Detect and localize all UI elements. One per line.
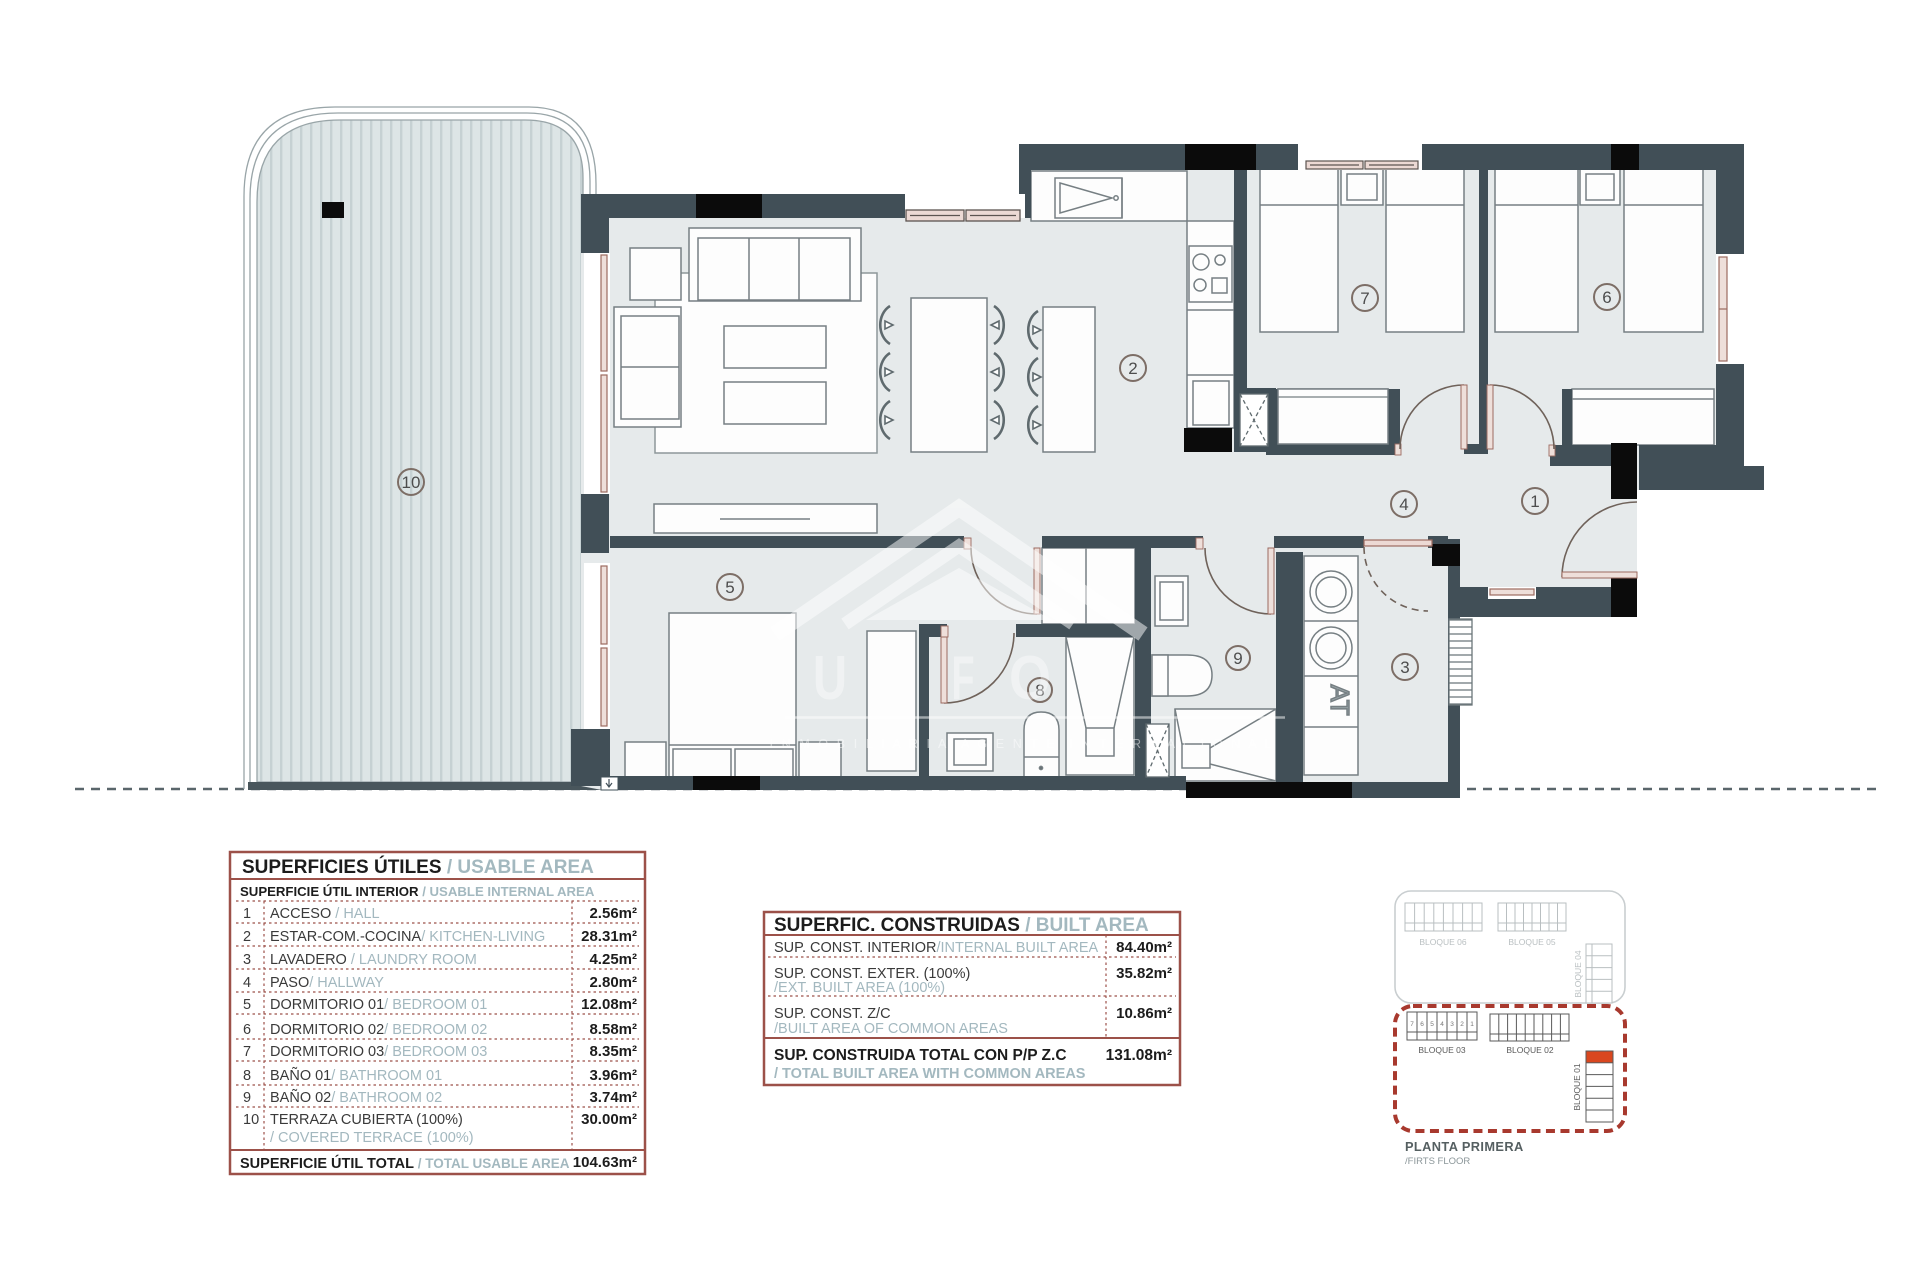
svg-text:1: 1	[243, 906, 251, 922]
svg-text:BAÑO 02/ BATHROOM 02: BAÑO 02/ BATHROOM 02	[270, 1089, 442, 1106]
svg-text:BLOQUE 05: BLOQUE 05	[1508, 937, 1556, 947]
svg-text:28.31m²: 28.31m²	[581, 928, 637, 945]
svg-text:BAÑO 01/ BATHROOM 01: BAÑO 01/ BATHROOM 01	[270, 1067, 442, 1084]
svg-text:/ COVERED TERRACE (100%): / COVERED TERRACE (100%)	[270, 1130, 474, 1146]
svg-text:2: 2	[243, 929, 251, 945]
svg-text:7: 7	[1360, 289, 1369, 308]
svg-text:8: 8	[243, 1068, 251, 1084]
svg-text:AT: AT	[1325, 684, 1355, 715]
svg-text:30.00m²: 30.00m²	[581, 1111, 637, 1128]
svg-text:BLOQUE 03: BLOQUE 03	[1418, 1045, 1466, 1055]
svg-text:SUPERFIC. CONSTRUIDAS / BUILT: SUPERFIC. CONSTRUIDAS / BUILT AREA	[774, 915, 1149, 936]
svg-text:12.08m²: 12.08m²	[581, 996, 637, 1013]
svg-text:1: 1	[1530, 492, 1539, 511]
svg-text:3: 3	[1450, 1021, 1454, 1028]
svg-text:131.08m²: 131.08m²	[1106, 1047, 1172, 1064]
svg-text:6: 6	[1602, 288, 1611, 307]
svg-text:3: 3	[1400, 658, 1409, 677]
svg-text:4: 4	[1440, 1021, 1444, 1028]
svg-text:BLOQUE 04: BLOQUE 04	[1573, 950, 1583, 998]
svg-text:10.86m²: 10.86m²	[1116, 1005, 1172, 1022]
svg-text:1: 1	[1470, 1021, 1474, 1028]
svg-text:5: 5	[1430, 1021, 1434, 1028]
svg-text:10: 10	[402, 473, 421, 492]
svg-text:4.25m²: 4.25m²	[589, 951, 637, 968]
svg-text:BLOQUE 02: BLOQUE 02	[1506, 1045, 1554, 1055]
svg-text:7: 7	[243, 1044, 251, 1060]
svg-text:SUP. CONSTRUIDA TOTAL CON P/P: SUP. CONSTRUIDA TOTAL CON P/P Z.C	[774, 1047, 1067, 1064]
svg-text:6: 6	[1420, 1021, 1424, 1028]
svg-text:SUPERFICIE ÚTIL INTERIOR / USA: SUPERFICIE ÚTIL INTERIOR / USABLE INTERN…	[240, 884, 595, 899]
svg-text:O: O	[1009, 644, 1051, 713]
svg-text:DORMITORIO 03/ BEDROOM 03: DORMITORIO 03/ BEDROOM 03	[270, 1044, 487, 1060]
svg-text:BLOQUE 01: BLOQUE 01	[1572, 1063, 1582, 1111]
svg-text:3.96m²: 3.96m²	[589, 1067, 637, 1084]
svg-text:7: 7	[1410, 1021, 1414, 1028]
svg-text:/BUILT AREA OF COMMON AREAS: /BUILT AREA OF COMMON AREAS	[774, 1021, 1008, 1037]
svg-text:LAVADERO / LAUNDRY ROOM: LAVADERO / LAUNDRY ROOM	[270, 952, 477, 968]
svg-text:SUP. CONST. INTERIOR/INTERNAL: SUP. CONST. INTERIOR/INTERNAL BUILT AREA	[774, 940, 1099, 956]
svg-text:SUPERFICIE ÚTIL TOTAL / TOTAL: SUPERFICIE ÚTIL TOTAL / TOTAL USABLE ARE…	[240, 1154, 570, 1172]
svg-text:SUP. CONST. Z/C: SUP. CONST. Z/C	[774, 1006, 891, 1022]
svg-text:ACCESO / HALL: ACCESO / HALL	[270, 906, 380, 922]
svg-text:PASO/ HALLWAY: PASO/ HALLWAY	[270, 975, 384, 991]
svg-text:/EXT. BUILT AREA (100%): /EXT. BUILT AREA (100%)	[774, 980, 945, 996]
svg-text:PLANTA PRIMERA: PLANTA PRIMERA	[1405, 1139, 1524, 1154]
svg-text:SUPERFICIES ÚTILES / USABLE AR: SUPERFICIES ÚTILES / USABLE AREA	[242, 856, 594, 878]
svg-text:4: 4	[243, 975, 251, 991]
svg-text:DORMITORIO 01/ BEDROOM 01: DORMITORIO 01/ BEDROOM 01	[270, 997, 487, 1013]
svg-text:104.63m²: 104.63m²	[573, 1154, 637, 1171]
svg-text:8.35m²: 8.35m²	[589, 1043, 637, 1060]
svg-text:2.80m²: 2.80m²	[589, 974, 637, 991]
svg-text:4: 4	[1399, 495, 1408, 514]
svg-text:2.56m²: 2.56m²	[589, 905, 637, 922]
svg-text:BLOQUE 06: BLOQUE 06	[1419, 937, 1467, 947]
svg-text:9: 9	[243, 1090, 251, 1106]
svg-text:3.74m²: 3.74m²	[589, 1089, 637, 1106]
svg-text:5: 5	[243, 997, 251, 1013]
svg-text:I N M O B I L I A R I A A G E: I N M O B I L I A R I A A G E N T E I N …	[770, 737, 1275, 751]
svg-text:84.40m²: 84.40m²	[1116, 939, 1172, 956]
svg-text:DORMITORIO 02/ BEDROOM 02: DORMITORIO 02/ BEDROOM 02	[270, 1022, 487, 1038]
svg-text:8.58m²: 8.58m²	[589, 1021, 637, 1038]
svg-text:6: 6	[243, 1022, 251, 1038]
svg-text:2: 2	[1460, 1021, 1464, 1028]
svg-text:F: F	[952, 644, 975, 713]
svg-text:/ TOTAL BUILT AREA WITH COMMON: / TOTAL BUILT AREA WITH COMMON AREAS	[774, 1066, 1086, 1082]
svg-text:5: 5	[725, 578, 734, 597]
svg-text:3: 3	[243, 952, 251, 968]
svg-text:2: 2	[1128, 359, 1137, 378]
svg-text:ESTAR-COM.-COCINA/ KITCHEN-LIV: ESTAR-COM.-COCINA/ KITCHEN-LIVING	[270, 929, 545, 945]
svg-text:TERRAZA CUBIERTA (100%): TERRAZA CUBIERTA (100%)	[270, 1112, 463, 1128]
svg-text:35.82m²: 35.82m²	[1116, 965, 1172, 982]
svg-text:9: 9	[1233, 649, 1242, 668]
svg-text:10: 10	[243, 1112, 259, 1128]
svg-text:/FIRTS FLOOR: /FIRTS FLOOR	[1405, 1156, 1470, 1167]
svg-text:U: U	[813, 644, 847, 713]
